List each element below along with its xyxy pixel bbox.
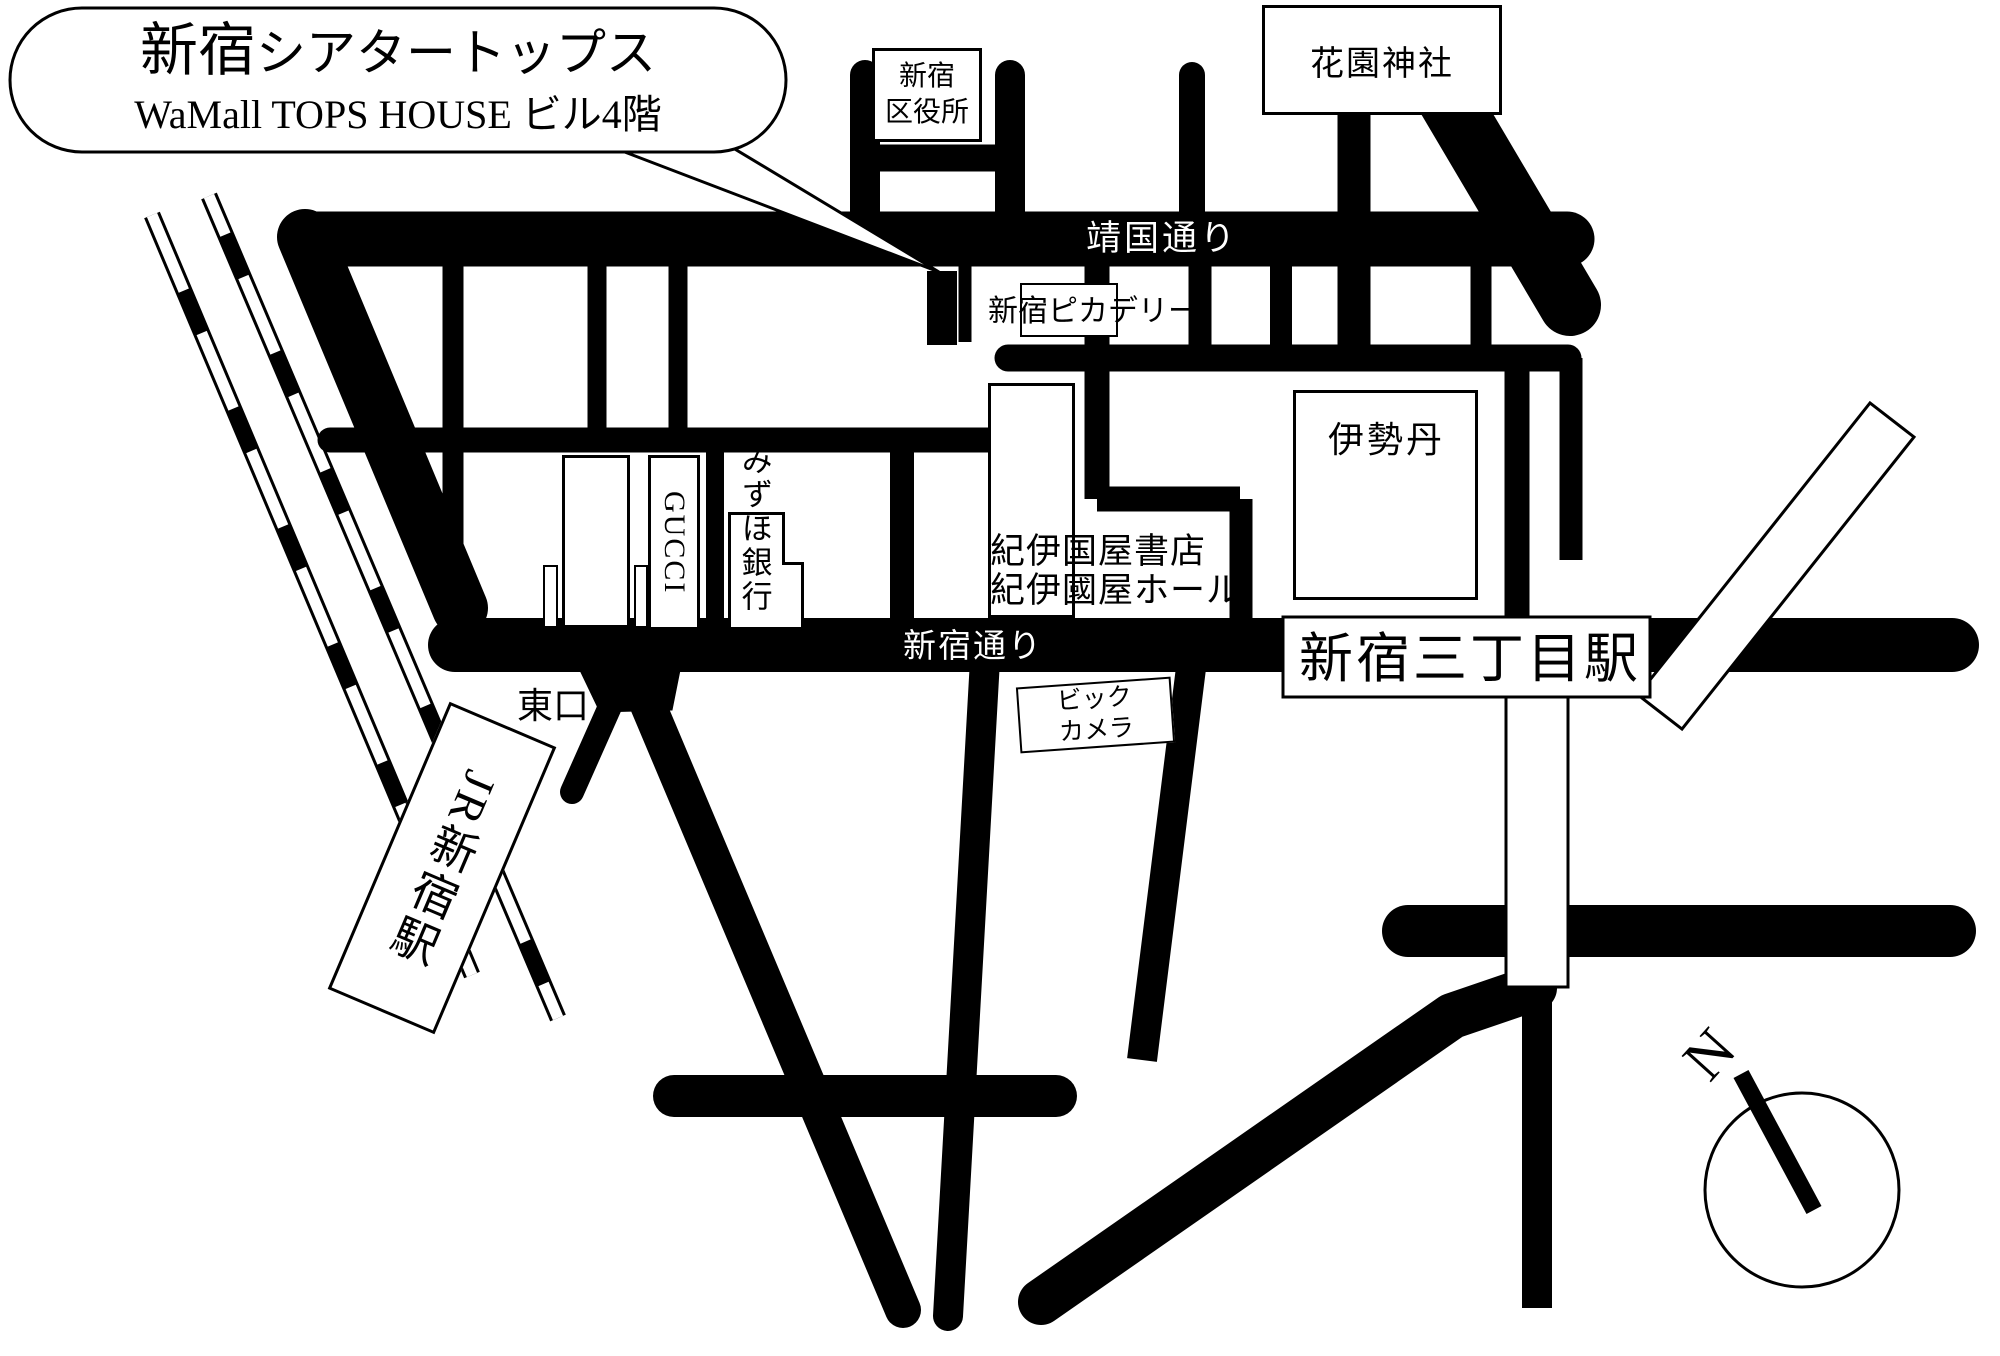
picadilly-label: 新宿ピカデリー [988,295,1198,330]
station-vertical-passage [1506,695,1568,987]
hanazono-shrine-box: 花園神社 [1262,5,1502,115]
mizuho-box-annex [782,562,804,630]
yasukuni-dori-label: 靖国通り [1086,219,1238,259]
ward-office-label-2: 区役所 [885,95,969,131]
theater-location-marker [927,271,957,345]
bic-camera-label-2: カメラ [1058,712,1135,748]
station-diagonal-passage [1638,403,1914,729]
ward-office-label-1: 新宿 [899,59,955,95]
kiosk-box-1 [543,565,558,628]
map-canvas [0,0,2000,1356]
hanazono-shrine-label: 花園神社 [1310,36,1454,85]
shinjuku-sanchome-station-label: 新宿三丁目駅 [1299,628,1641,690]
bic-camera-box: ビック カメラ [1016,677,1175,754]
shinjuku-access-map: 新宿シアタートップス WaMall TOPS HOUSE ビル4階 新宿 区役所… [0,0,2000,1356]
callout-title: 新宿シアタートップス [30,18,766,85]
kinokuniya-label-2: 紀伊國屋ホール [990,571,1242,611]
ward-office-box: 新宿 区役所 [872,48,982,142]
street-south-diagonal-2 [948,660,985,1316]
shinjuku-dori-label: 新宿通り [903,629,1043,667]
building-box-unlabeled [562,455,630,628]
road-south-wide-diagonal [1041,988,1534,1302]
callout-subtitle: WaMall TOPS HOUSE ビル4階 [30,92,766,138]
isetan-label: 伊勢丹 [1328,420,1445,461]
street-south-diagonal-1 [648,705,903,1310]
kiosk-box-2 [634,565,648,628]
gucci-box: GUCCI [648,455,700,630]
mizuho-label: みずほ銀行 [736,444,772,639]
callout-title-rest: シアタートップス [256,25,656,81]
compass [1705,1074,1899,1287]
east-exit-label: 東口 [517,686,589,727]
kinokuniya-label-1: 紀伊国屋書店 [990,532,1206,572]
callout-title-emphasis: 新宿 [140,18,256,83]
road-diagonal-west [305,237,460,608]
gucci-label: GUCCI [657,491,691,594]
